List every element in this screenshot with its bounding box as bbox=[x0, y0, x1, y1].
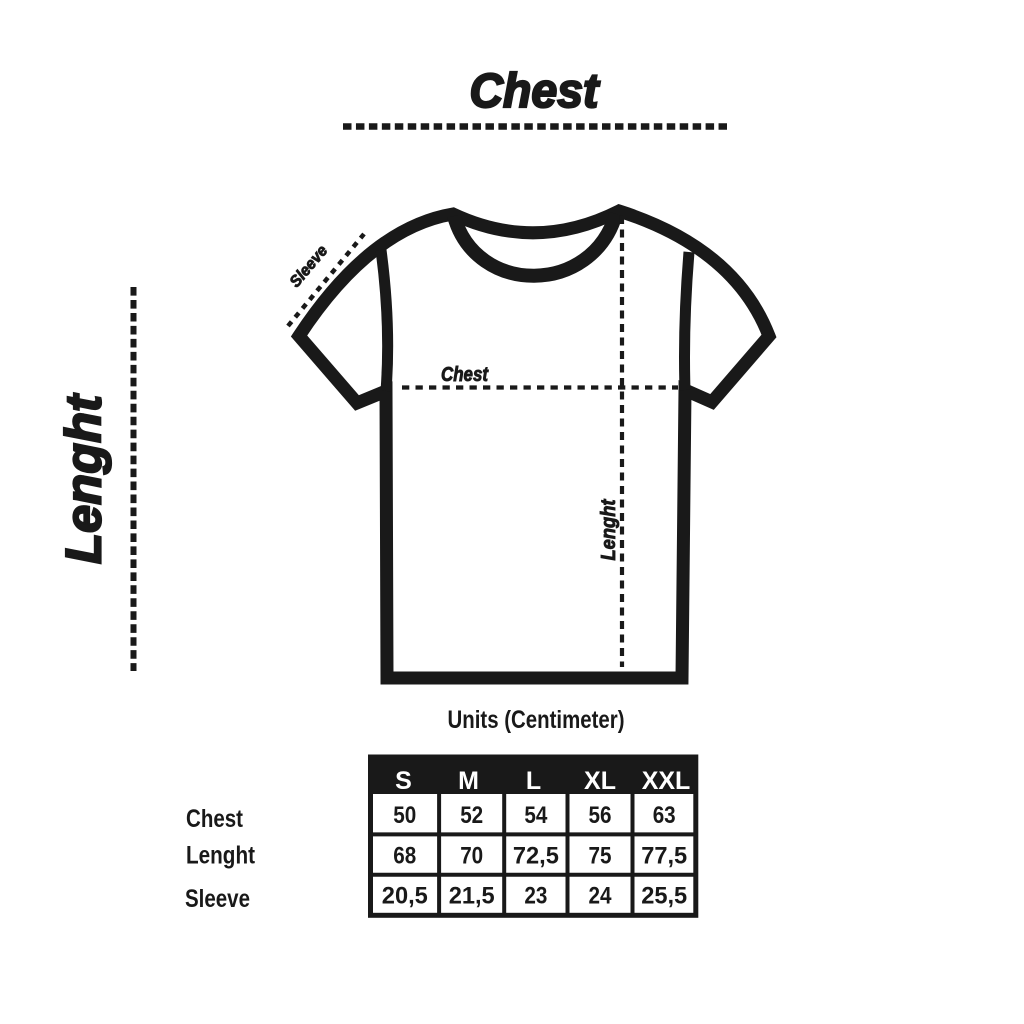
svg-text:21,5: 21,5 bbox=[449, 883, 495, 910]
svg-text:S: S bbox=[395, 767, 412, 795]
svg-text:Units (Centimeter): Units (Centimeter) bbox=[448, 706, 625, 734]
svg-text:Chest: Chest bbox=[470, 65, 601, 118]
svg-text:Sleeve: Sleeve bbox=[185, 885, 250, 913]
svg-text:68: 68 bbox=[393, 842, 416, 869]
svg-text:52: 52 bbox=[460, 802, 483, 829]
svg-text:77,5: 77,5 bbox=[641, 842, 687, 869]
svg-text:Lenght: Lenght bbox=[186, 842, 256, 870]
svg-text:XXL: XXL bbox=[642, 767, 691, 795]
svg-text:20,5: 20,5 bbox=[382, 883, 428, 910]
svg-text:Lenght: Lenght bbox=[598, 498, 620, 560]
svg-text:75: 75 bbox=[589, 842, 612, 869]
svg-text:M: M bbox=[458, 767, 479, 795]
svg-text:70: 70 bbox=[460, 842, 483, 869]
svg-text:XL: XL bbox=[584, 767, 616, 795]
svg-text:54: 54 bbox=[524, 802, 548, 829]
svg-text:25,5: 25,5 bbox=[641, 883, 687, 910]
svg-text:63: 63 bbox=[653, 802, 676, 829]
svg-text:24: 24 bbox=[589, 883, 613, 910]
svg-text:50: 50 bbox=[393, 802, 416, 829]
svg-text:L: L bbox=[526, 767, 541, 795]
svg-text:72,5: 72,5 bbox=[513, 842, 559, 869]
svg-text:Chest: Chest bbox=[441, 364, 489, 386]
svg-text:23: 23 bbox=[524, 883, 547, 910]
svg-text:Lenght: Lenght bbox=[56, 393, 112, 564]
svg-text:56: 56 bbox=[589, 802, 612, 829]
svg-text:Chest: Chest bbox=[186, 805, 244, 833]
